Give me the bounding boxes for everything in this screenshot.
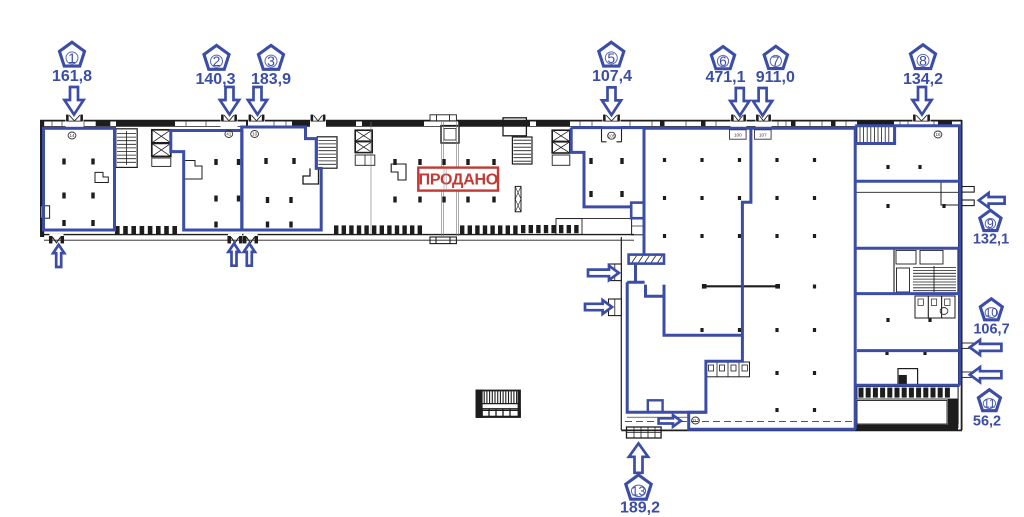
svg-text:911,0: 911,0 xyxy=(756,69,795,86)
svg-text:5: 5 xyxy=(607,50,615,66)
svg-text:112: 112 xyxy=(692,418,700,423)
svg-text:134,2: 134,2 xyxy=(903,71,943,88)
svg-text:1: 1 xyxy=(68,50,76,66)
svg-text:132,1: 132,1 xyxy=(973,232,1009,248)
svg-text:3: 3 xyxy=(267,53,275,69)
svg-text:471,1: 471,1 xyxy=(705,69,745,86)
svg-text:16: 16 xyxy=(935,132,941,137)
svg-text:106,7: 106,7 xyxy=(973,321,1009,337)
svg-text:10: 10 xyxy=(985,308,998,320)
svg-text:8: 8 xyxy=(919,52,927,68)
svg-text:183,9: 183,9 xyxy=(251,71,291,88)
svg-text:13: 13 xyxy=(632,484,646,498)
svg-text:11: 11 xyxy=(983,399,995,411)
svg-text:56,2: 56,2 xyxy=(973,413,1001,429)
svg-text:7: 7 xyxy=(772,54,780,69)
svg-text:ПРОДАНО: ПРОДАНО xyxy=(419,172,498,189)
svg-text:14: 14 xyxy=(69,133,75,138)
svg-text:107: 107 xyxy=(759,132,767,137)
svg-text:107,4: 107,4 xyxy=(592,68,632,85)
svg-text:41: 41 xyxy=(226,132,232,137)
svg-text:6: 6 xyxy=(719,54,727,69)
svg-text:2: 2 xyxy=(213,53,221,69)
svg-text:100: 100 xyxy=(734,132,742,137)
svg-text:105: 105 xyxy=(608,133,616,138)
svg-text:9: 9 xyxy=(987,217,994,231)
svg-text:161,8: 161,8 xyxy=(52,68,92,85)
svg-text:140,3: 140,3 xyxy=(195,71,235,88)
svg-text:189,2: 189,2 xyxy=(620,500,660,517)
svg-text:10: 10 xyxy=(252,132,258,137)
